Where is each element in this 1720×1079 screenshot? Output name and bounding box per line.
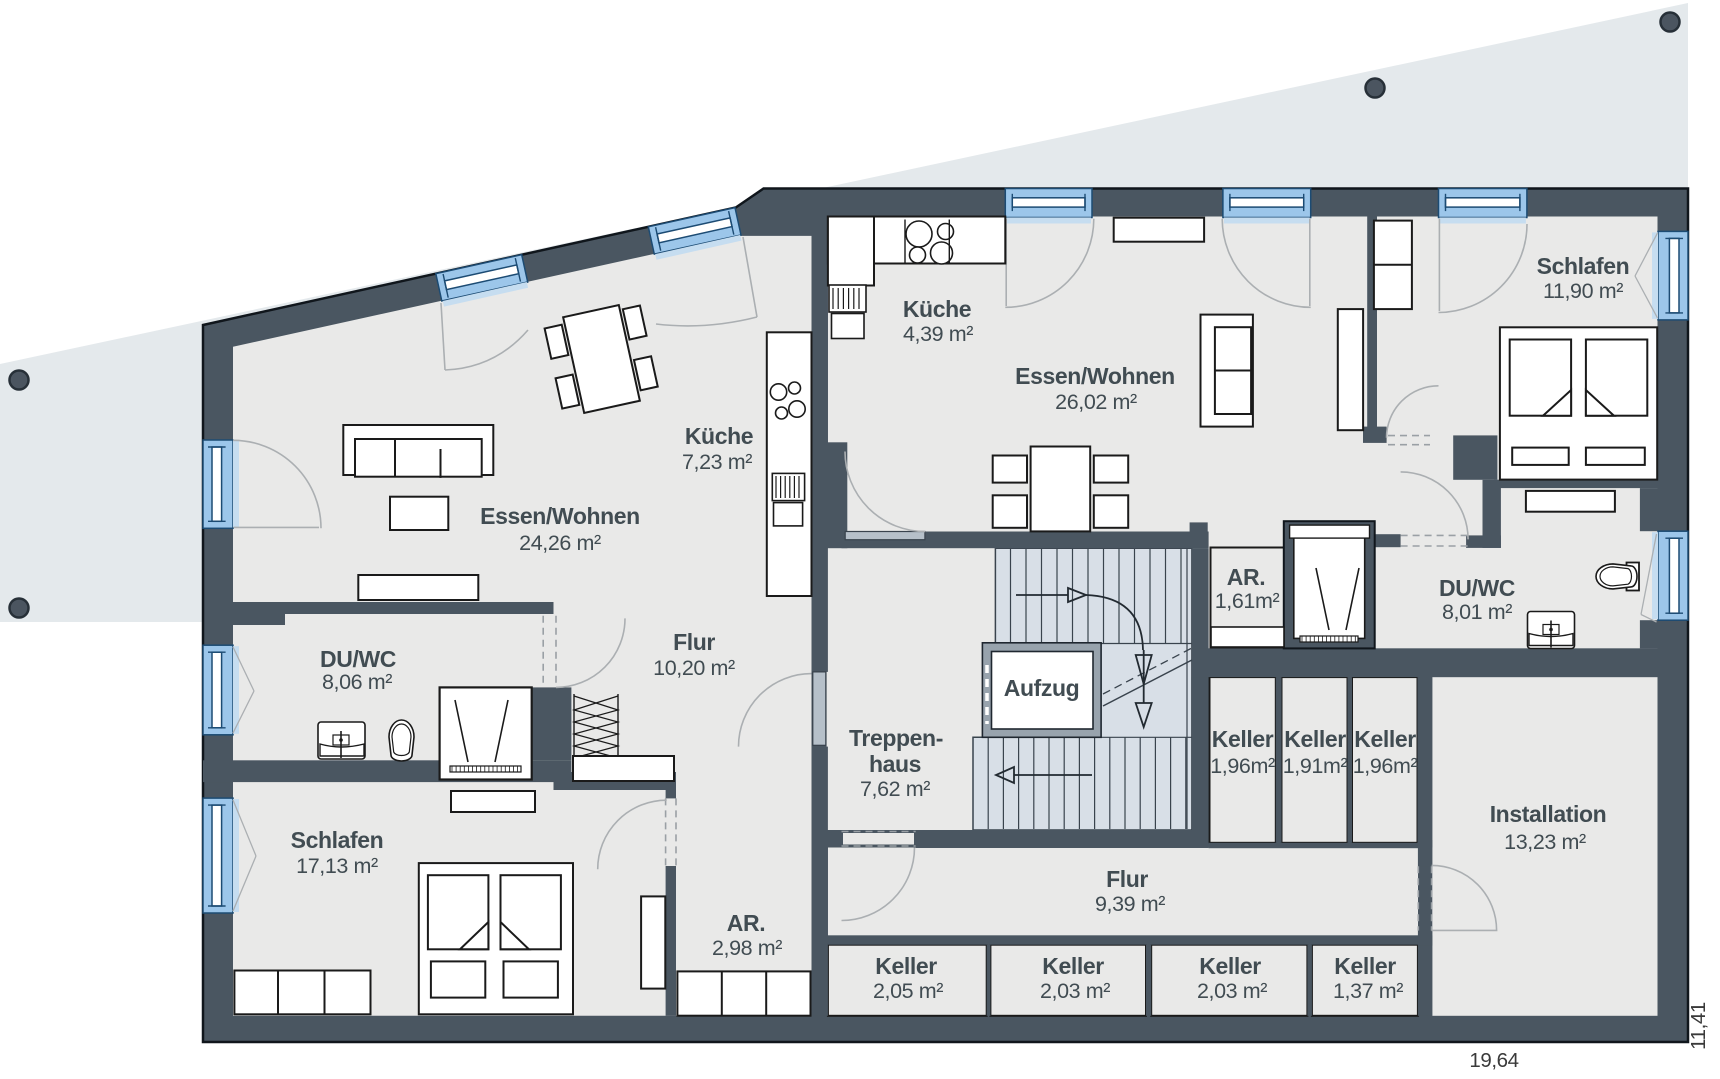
svg-text:11,41: 11,41 — [1687, 1002, 1710, 1050]
svg-text:Flur: Flur — [673, 629, 715, 655]
svg-text:haus: haus — [869, 751, 921, 777]
svg-text:2,03 m²: 2,03 m² — [1040, 979, 1110, 1003]
svg-text:1,96m²: 1,96m² — [1210, 754, 1275, 778]
svg-text:DU/WC: DU/WC — [1439, 575, 1515, 601]
svg-text:10,20 m²: 10,20 m² — [653, 656, 735, 680]
svg-text:Flur: Flur — [1106, 866, 1148, 892]
svg-text:1,96m²: 1,96m² — [1353, 754, 1418, 778]
svg-text:DU/WC: DU/WC — [320, 646, 396, 672]
svg-text:17,13 m²: 17,13 m² — [296, 854, 378, 878]
svg-text:Keller: Keller — [1284, 726, 1346, 752]
svg-text:2,05 m²: 2,05 m² — [873, 979, 943, 1003]
svg-text:7,23 m²: 7,23 m² — [682, 450, 752, 474]
svg-text:Essen/Wohnen: Essen/Wohnen — [1015, 363, 1175, 389]
svg-text:AR.: AR. — [727, 910, 765, 936]
svg-text:8,06 m²: 8,06 m² — [322, 670, 392, 694]
svg-text:Treppen-: Treppen- — [849, 725, 943, 751]
svg-text:Essen/Wohnen: Essen/Wohnen — [480, 503, 640, 529]
svg-text:24,26 m²: 24,26 m² — [519, 531, 601, 555]
svg-text:Aufzug: Aufzug — [1004, 675, 1080, 701]
svg-text:1,91m²: 1,91m² — [1283, 754, 1348, 778]
svg-text:Schlafen: Schlafen — [291, 827, 384, 853]
svg-text:Keller: Keller — [1334, 953, 1396, 979]
svg-text:Keller: Keller — [1199, 953, 1261, 979]
svg-text:Keller: Keller — [1042, 953, 1104, 979]
svg-text:2,98 m²: 2,98 m² — [712, 936, 782, 960]
svg-text:Installation: Installation — [1490, 801, 1607, 827]
svg-text:Schlafen: Schlafen — [1537, 253, 1630, 279]
svg-text:AR.: AR. — [1227, 564, 1265, 590]
svg-text:1,37 m²: 1,37 m² — [1333, 979, 1403, 1003]
svg-text:11,90 m²: 11,90 m² — [1543, 279, 1623, 303]
svg-text:19,64: 19,64 — [1469, 1049, 1518, 1072]
svg-text:7,62 m²: 7,62 m² — [860, 777, 930, 801]
svg-text:26,02 m²: 26,02 m² — [1055, 390, 1137, 414]
svg-text:1,61m²: 1,61m² — [1215, 589, 1280, 613]
svg-text:Küche: Küche — [903, 296, 971, 322]
svg-text:Keller: Keller — [1212, 726, 1274, 752]
svg-text:Küche: Küche — [685, 423, 753, 449]
svg-text:13,23 m²: 13,23 m² — [1504, 830, 1586, 854]
svg-text:8,01 m²: 8,01 m² — [1442, 600, 1512, 624]
svg-text:9,39 m²: 9,39 m² — [1095, 892, 1165, 916]
svg-text:Keller: Keller — [875, 953, 937, 979]
svg-text:Keller: Keller — [1354, 726, 1416, 752]
svg-text:2,03 m²: 2,03 m² — [1197, 979, 1267, 1003]
svg-text:4,39 m²: 4,39 m² — [903, 322, 973, 346]
